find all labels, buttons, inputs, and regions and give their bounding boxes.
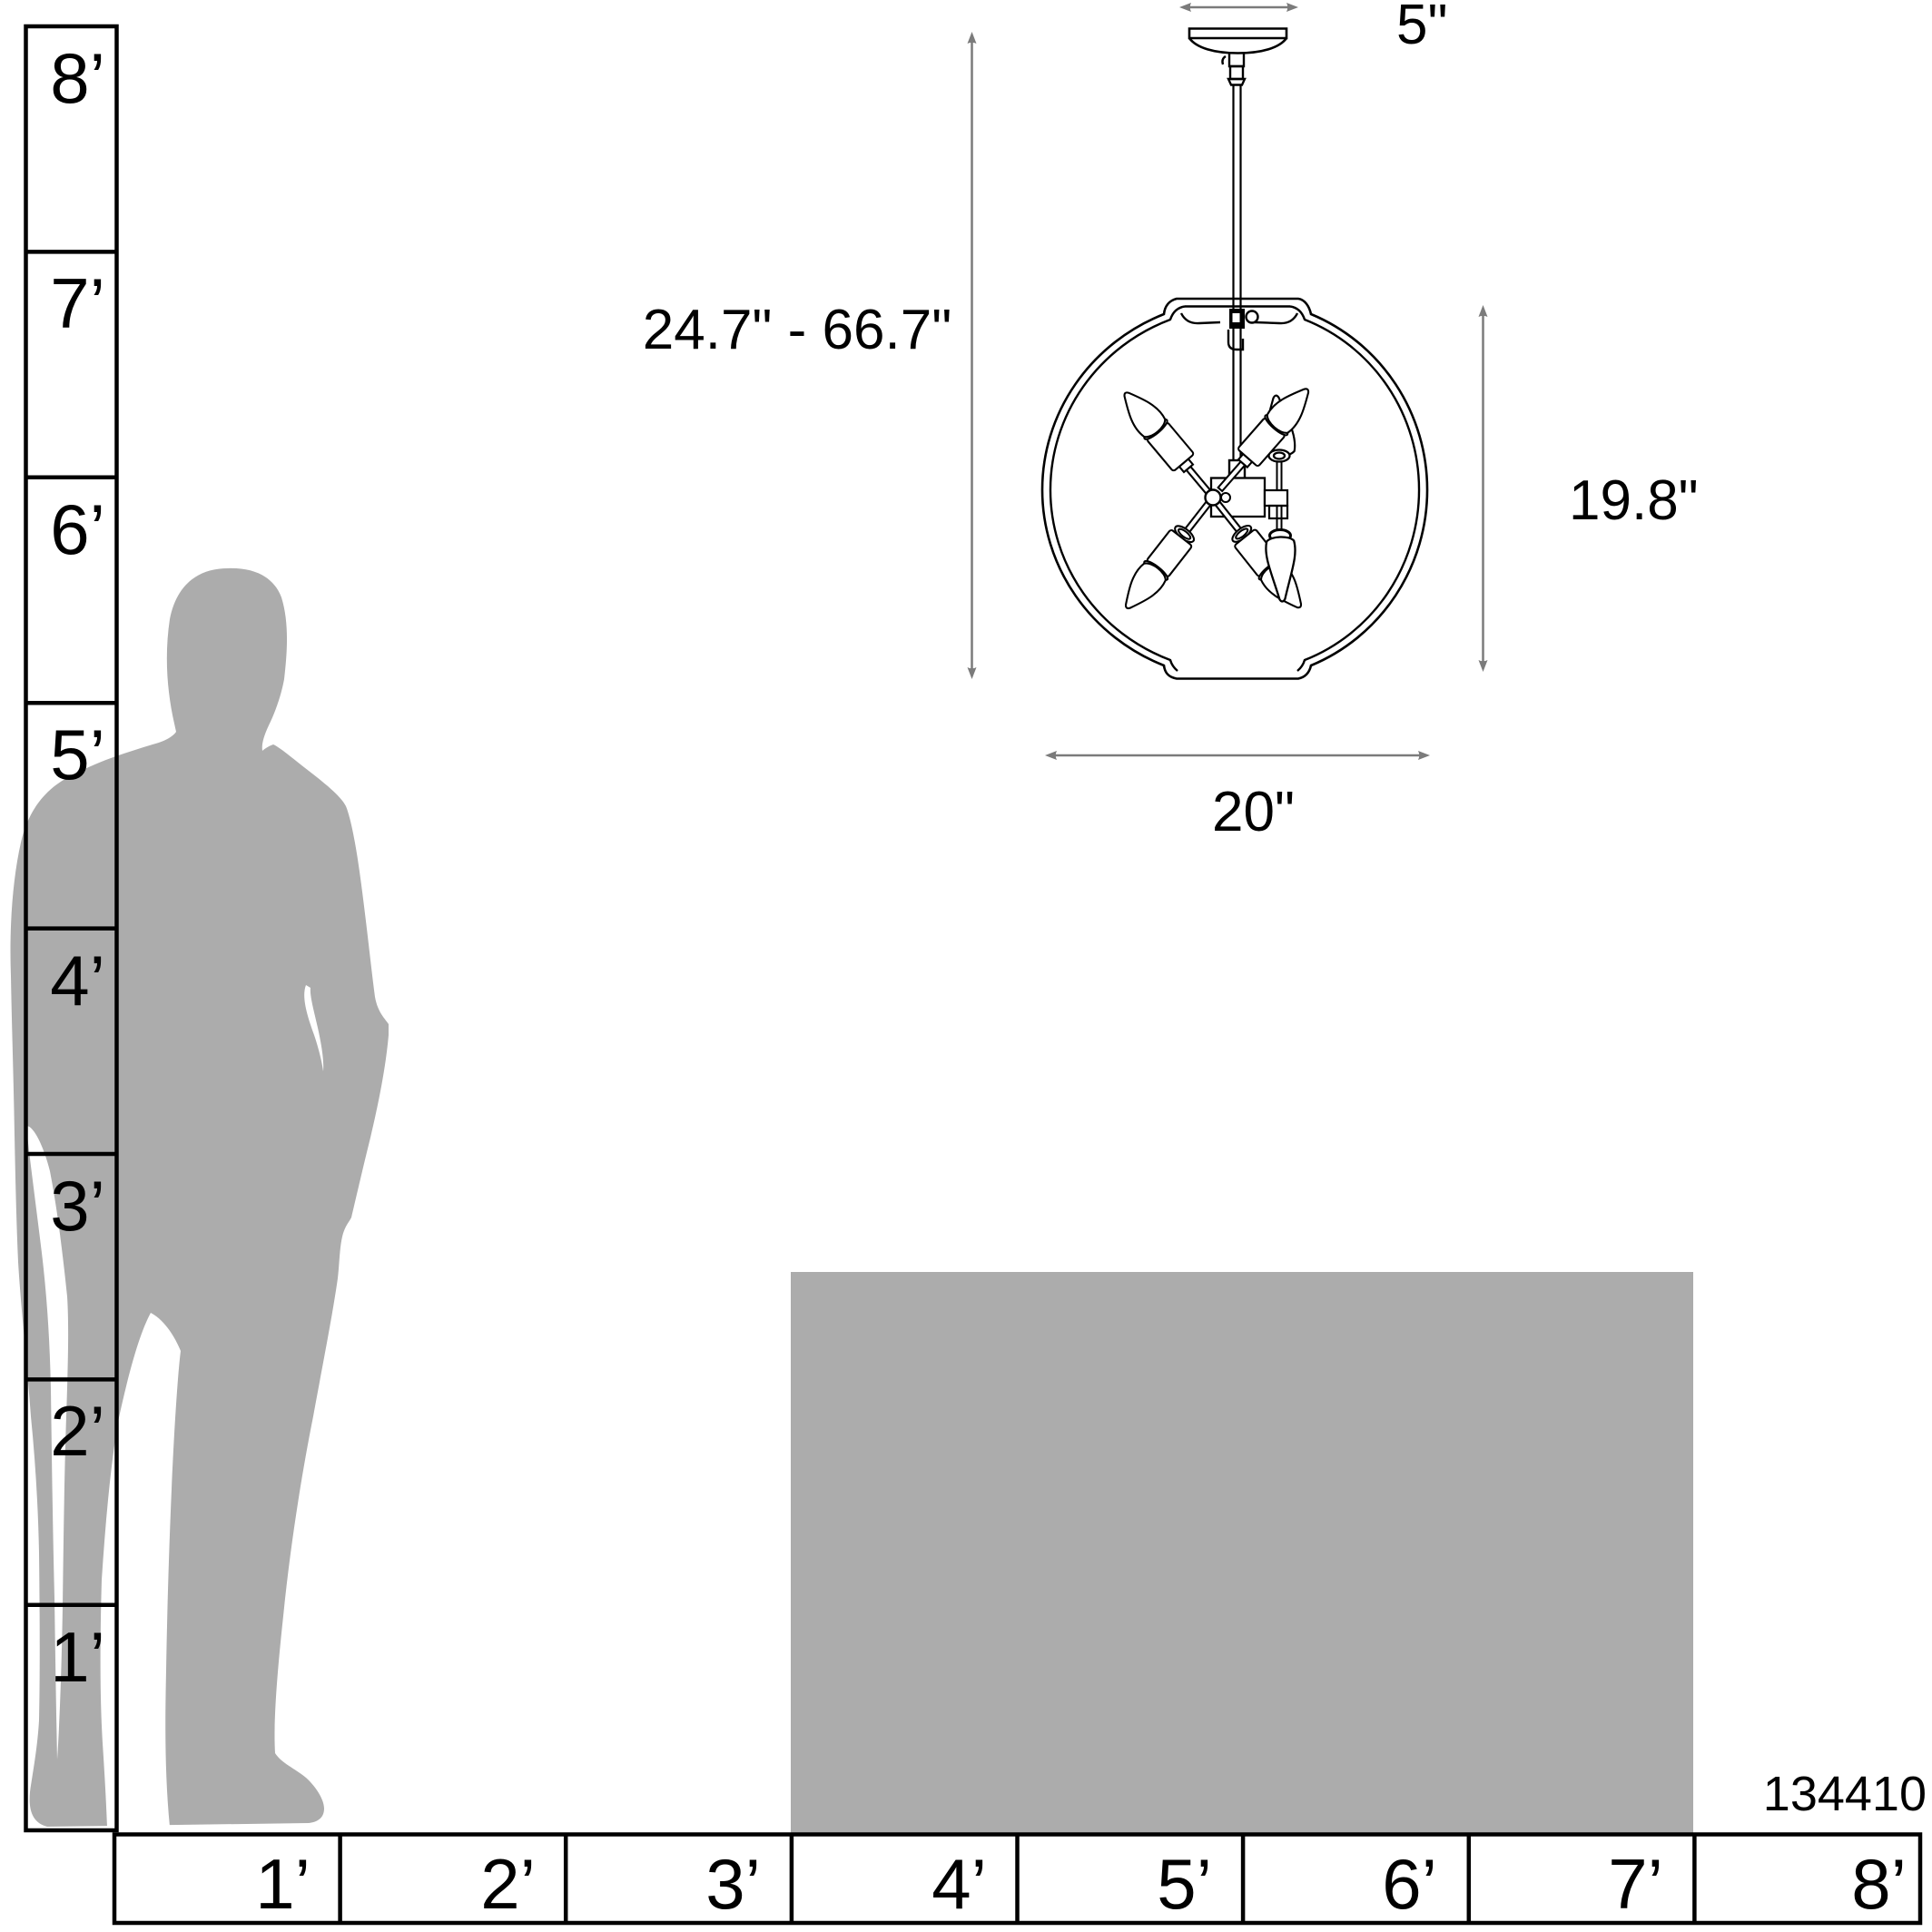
svg-text:8’: 8’ xyxy=(50,38,105,118)
svg-text:5’: 5’ xyxy=(50,715,105,794)
svg-text:3’: 3’ xyxy=(705,1844,761,1924)
svg-text:1’: 1’ xyxy=(255,1844,310,1924)
svg-text:19.8": 19.8" xyxy=(1569,469,1699,532)
svg-text:1’: 1’ xyxy=(50,1617,105,1697)
svg-text:2’: 2’ xyxy=(50,1391,105,1471)
svg-text:4’: 4’ xyxy=(50,941,105,1020)
svg-text:20": 20" xyxy=(1212,781,1295,843)
svg-text:5": 5" xyxy=(1396,0,1448,56)
svg-text:4’: 4’ xyxy=(931,1844,987,1924)
svg-text:134410: 134410 xyxy=(1763,1767,1927,1821)
svg-text:3’: 3’ xyxy=(50,1166,105,1246)
svg-text:7’: 7’ xyxy=(1608,1844,1663,1924)
svg-text:2’: 2’ xyxy=(480,1844,536,1924)
svg-text:5’: 5’ xyxy=(1157,1844,1212,1924)
svg-text:8’: 8’ xyxy=(1851,1844,1907,1924)
svg-text:6’: 6’ xyxy=(50,489,105,569)
svg-text:6’: 6’ xyxy=(1382,1844,1437,1924)
svg-text:24.7" - 66.7": 24.7" - 66.7" xyxy=(643,299,951,361)
svg-text:7’: 7’ xyxy=(50,263,105,343)
